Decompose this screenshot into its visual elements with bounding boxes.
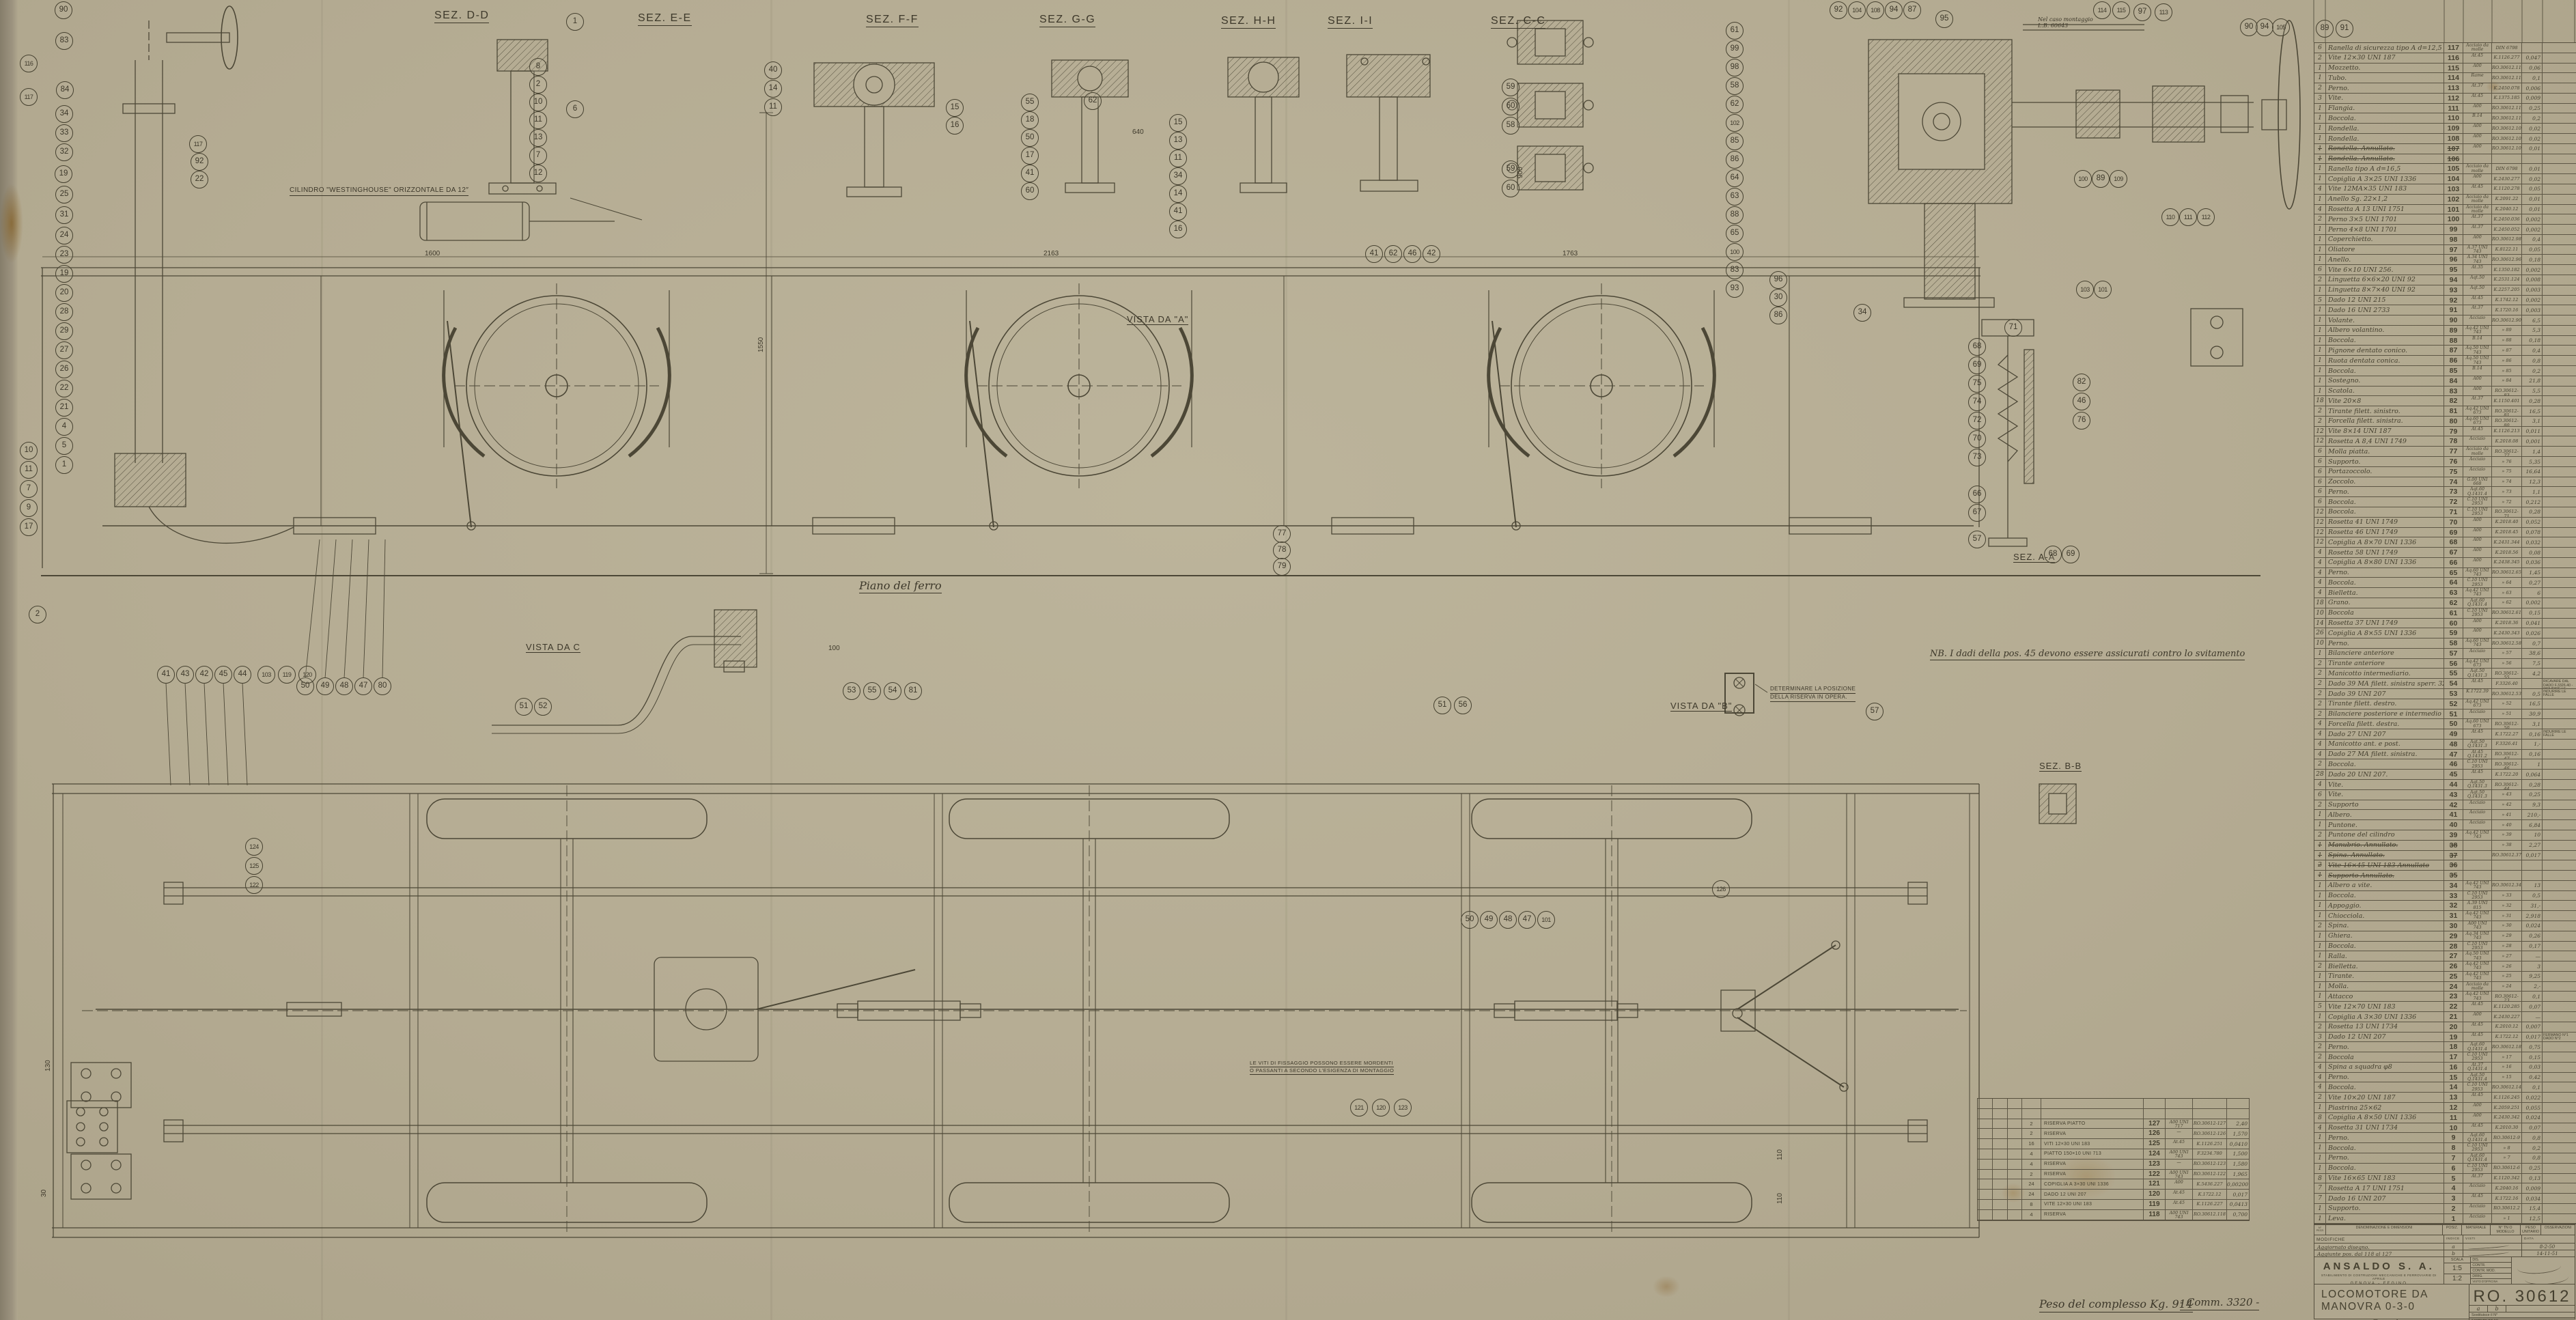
table-cell: RO.30612.65 [2492,568,2522,578]
table-cell: 55 [2444,669,2463,678]
revision-empty [2506,1306,2575,1312]
table-cell [2463,851,2492,860]
table-cell: 115 [2444,64,2463,73]
table-cell [2543,659,2576,669]
aux-table-row: 24COPIGLIA A 3×30 UNI 1336121A00K.5436.2… [1978,1179,2249,1190]
table-cell: 107 [2444,144,2463,154]
table-cell [2543,1012,2576,1022]
table-cell: Rondella. Annullato. [2326,154,2444,164]
table-cell: Vite 6×10 UNI 256. [2326,265,2444,275]
table-cell: 1 [2314,1143,2326,1153]
table-cell: Linguetta 6×6×20 UNI 92 [2326,275,2444,285]
table-cell [2543,851,2576,860]
table-cell: 0,2 [2522,113,2543,123]
modifiche-header-row: MODIFICHE INDICE VISTI DATA [2314,1235,2575,1244]
table-cell [2543,255,2576,264]
part-balloon: 60 [1021,182,1039,200]
table-cell: 5 [2314,1002,2326,1011]
table-cell: Boccola. [2326,759,2444,769]
table-cell: K.2450.052 [2492,225,2522,234]
aux-cell [1978,1129,1993,1138]
part-balloon: 41 [1365,245,1383,263]
table-cell: 4 [2314,184,2326,194]
dimension-text: 2163 [1044,250,1059,257]
part-balloon: 94 [2256,18,2273,36]
table-row: 10Perno.58Aq.60 UNI 743RO.30612.580,7 [2314,638,2576,649]
table-cell: 101 [2444,205,2463,214]
table-row: 2Boccola.46C.10 UNI 2953RO.30612-461 [2314,759,2576,770]
table-cell: Aq.42 UNI 743 [2463,961,2492,971]
table-cell: 0,003 [2522,305,2543,315]
table-cell [2543,64,2576,73]
part-balloon: 47 [1518,911,1536,929]
part-balloon: 10 [529,94,547,111]
table-cell: Forcella filett. destra. [2326,719,2444,729]
table-cell: K.2257.205 [2492,285,2522,295]
table-cell: 113 [2444,83,2463,93]
part-balloon: 126 [1712,880,1730,898]
table-cell: 0,078 [2522,528,2543,537]
table-cell: K.1126.277 [2492,53,2522,63]
table-cell: At.37 [2463,1174,2492,1183]
table-cell: K.2430.343 [2492,628,2522,638]
table-cell: Grano. [2326,598,2444,608]
table-cell: RO.30612.18 [2492,1042,2522,1052]
aux-cell [2008,1170,2022,1179]
table-cell: 82 [2444,396,2463,406]
table-cell [2543,144,2576,154]
table-cell: 34 [2444,881,2463,890]
table-cell: K.1720.16 [2492,305,2522,315]
table-cell: 74 [2444,477,2463,487]
table-cell: Acciaio da molle [2463,43,2492,53]
table-cell: K.2430.277 [2492,174,2522,184]
part-balloon: 50 [1021,129,1039,147]
table-cell: Vite 20×8 [2326,396,2444,406]
table-cell: 50 [2444,719,2463,729]
part-balloon: 1 [55,456,73,474]
aux-cell: VITE 12×30 UNI 183 [2041,1200,2144,1209]
part-balloon: 117 [189,135,207,153]
part-balloon: 73 [1968,449,1986,466]
signature-scribble [2468,1250,2509,1256]
table-row: 4Perno.65Aq.60 UNI 743RO.30612.651,45 [2314,568,2576,578]
table-cell: 0,01 [2522,205,2543,214]
table-cell [2543,1002,2576,1011]
table-cell: A00 [2463,1113,2492,1123]
table-cell: Acciaio [2463,467,2492,477]
table-row: 8Copiglia A 8×50 UNI 133611A00K.2430.342… [2314,1113,2576,1123]
table-cell: 0,07 [2522,1123,2543,1133]
table-cell: 94 [2444,275,2463,285]
table-cell: 99 [2444,225,2463,234]
table-cell: 0,017 [2522,1033,2543,1042]
company-name: ANSALDO S. A. [2314,1261,2444,1272]
table-cell: A00 [2463,1012,2492,1022]
table-cell: 0,5 [2522,689,2543,699]
table-cell: 6 [2314,467,2326,477]
table-cell: » 72 [2492,497,2522,507]
table-cell: Anello Sg. 22×1,2 [2326,195,2444,204]
table-row: 1Leva.1Acciaio» 112,5 [2314,1214,2576,1224]
table-cell: Vite. [2326,94,2444,103]
table-cell: K.2010.30 [2492,1123,2522,1133]
table-cell: Aq.34 UNI 743 [2463,931,2492,941]
aux-cell [2144,1109,2166,1119]
table-cell: 1 [2314,1133,2326,1142]
table-cell: 7 [2444,1153,2463,1163]
part-balloon: 44 [234,666,251,684]
table-cell: B.14 [2463,113,2492,123]
table-cell: 7 [2314,1194,2326,1203]
table-row: 1Linguetta 8×7×40 UNI 9293Aqt.50K.2257.2… [2314,285,2576,296]
table-cell: Aq.42 UNI 743 [2463,972,2492,981]
table-cell: Copiglia A 8×70 UNI 1336 [2326,537,2444,547]
table-cell: 6,5 [2522,315,2543,325]
part-balloon: 84 [56,81,74,99]
table-cell: Rosetta 46 UNI 1749 [2326,528,2444,537]
table-cell [2543,669,2576,678]
table-row: 2Boccola17C.10 UNI 2953» 170,15 [2314,1052,2576,1063]
montaggio-note-line2: L.B. 60643 [2038,23,2093,29]
table-cell: Dado 16 UNI 207 [2326,1194,2444,1203]
table-cell [2543,972,2576,981]
table-cell: 0,2 [2522,1143,2543,1153]
table-cell: At.45 [2463,679,2492,688]
table-cell [2543,356,2576,365]
aux-cell [2008,1099,2022,1108]
table-cell [2543,860,2576,870]
table-cell: 93 [2444,285,2463,295]
table-cell: 0,18 [2522,255,2543,264]
table-cell: » 89 [2492,326,2522,335]
table-cell [2543,901,2576,910]
table-cell [2543,841,2576,850]
aux-cell: DADO 12 UNI 207 [2041,1190,2144,1199]
part-balloon: 11 [20,461,38,479]
part-balloon: 112 [2197,208,2215,226]
table-cell: 6 [2314,447,2326,456]
table-cell: At.45 [2463,427,2492,436]
aux-cell: RISERVA [2041,1160,2144,1169]
table-row: 2Tirante filett. destro.52Aq.42 UNI 673»… [2314,699,2576,710]
company-cell: ANSALDO S. A. STABILIMENTO DI COSTRUZION… [2314,1257,2444,1284]
table-cell [2543,1214,2576,1224]
table-row: 1Molla.24Acciaio da molle» 242,- [2314,982,2576,992]
table-cell: Sostegno. [2326,376,2444,386]
table-cell: Perno. [2326,1042,2444,1052]
table-cell [2543,94,2576,103]
aux-cell [2008,1119,2022,1129]
table-row: 7Dado 16 UNI 2073At.45K.1722.160,034 [2314,1194,2576,1204]
table-cell: K.2018.08 [2492,436,2522,446]
table-cell: Acciaio [2463,710,2492,719]
table-cell [2543,245,2576,255]
section-label: SEZ. F-F [866,14,919,27]
table-cell [2543,1153,2576,1163]
table-cell: 10 [2314,608,2326,618]
table-row: 1Supporto Annullato.35 [2314,871,2576,881]
table-cell: 1 [2314,891,2326,901]
table-cell: K.1120.278 [2492,184,2522,194]
table-cell: Boccola. [2326,1082,2444,1092]
table-cell: At.45 [2463,1033,2492,1042]
dimension-text: 1600 [425,250,440,257]
part-balloon: 31 [55,206,73,224]
table-cell: » 51 [2492,710,2522,719]
table-cell: 3 [2444,1194,2463,1203]
aux-cell: 119 [2144,1200,2166,1209]
aux-cell [1978,1109,1993,1119]
table-cell: 4 [2314,558,2326,567]
table-cell: Acciaio [2463,820,2492,830]
table-cell: 46 [2444,759,2463,769]
table-row: 2Linguetta 6×6×20 UNI 9294Aqt.50K.2531.1… [2314,275,2576,285]
nb-note: NB. I dadi della pos. 45 devono essere a… [1930,649,2245,660]
part-balloon: 102 [1726,114,1744,132]
table-cell: 0,009 [2522,94,2543,103]
part-balloon: 92 [1830,1,1847,19]
table-cell: RO.30612.58 [2492,638,2522,648]
table-cell [2543,1073,2576,1082]
table-cell: K.2531.124 [2492,275,2522,285]
table-cell [2543,73,2576,83]
table-cell: Aq.60 UNI 743 [2463,568,2492,578]
table-cell: 78 [2444,436,2463,446]
part-balloon: 42 [1423,245,1440,263]
table-cell: Vite 8×14 UNI 187 [2326,427,2444,436]
table-cell: 4 [2314,750,2326,759]
table-cell: Spina. [2326,921,2444,931]
table-cell: Boccola. [2326,507,2444,517]
signature-labels: DIS. CONTR. CONTR. MOD. DIRIG. VISTO D'O… [2471,1257,2512,1284]
table-cell: 37 [2444,851,2463,860]
table-cell: 67 [2444,548,2463,557]
table-cell: Chiocciola. [2326,911,2444,921]
table-row: 1Volante.90AcciaioRO.30612.906,5 [2314,315,2576,326]
table-cell: 52 [2444,699,2463,709]
table-row: 3Dado 12 UNI 20719At.45K.1722.120,017Fer… [2314,1033,2576,1043]
table-cell: Coperchietto. [2326,235,2444,244]
table-cell: At.37 [2463,214,2492,224]
table-cell: Boccola [2326,1052,2444,1062]
table-cell: 1,4 [2522,447,2543,456]
part-balloon: 41 [1169,203,1187,221]
table-cell: 110 [2444,113,2463,123]
table-cell: A00 [2463,174,2492,184]
table-cell: 12 [2314,436,2326,446]
montaggio-note-line1: Nel caso montaggio [2038,16,2093,23]
table-cell: K.2438.345 [2492,558,2522,567]
aux-cell [2166,1099,2193,1108]
aux-cell [2193,1099,2227,1108]
table-cell: — [2522,951,2543,961]
table-cell: » 27 [2492,951,2522,961]
table-cell: 44 [2444,780,2463,789]
table-cell [2543,1103,2576,1112]
table-cell: » 42 [2492,800,2522,810]
table-cell: 10 [2314,638,2326,648]
table-cell: 105 [2444,164,2463,173]
header-osservazioni: OSSERVAZIONI [2541,1225,2575,1235]
table-cell: 0,036 [2522,558,2543,567]
table-cell: 2 [2314,214,2326,224]
aux-cell [2041,1099,2144,1108]
table-cell: » 62 [2492,598,2522,608]
aux-cell: 0,0413 [2227,1200,2249,1209]
table-cell: Acciaio [2463,800,2492,810]
table-cell: Supporto. [2326,1204,2444,1213]
part-balloon: 60 [1502,98,1520,115]
table-cell: RO.30612-46 [2492,759,2522,769]
table-cell: 33 [2444,891,2463,901]
table-cell: » 63 [2492,588,2522,598]
table-cell: 31,- [2522,901,2543,910]
sig-contr-mod: CONTR. MOD. [2471,1268,2511,1274]
table-cell: K.2018.40 [2492,518,2522,527]
table-cell: At.45 [2463,1194,2492,1203]
aux-cell: 4 [2022,1149,2041,1159]
aux-cell [1978,1149,1993,1159]
table-cell [2543,891,2576,901]
aux-cell: — [2166,1129,2193,1138]
table-row: 1Dado 16 UNI 273391At.37K.1720.160,003 [2314,305,2576,315]
table-cell: 90 [2444,315,2463,325]
table-cell [2543,436,2576,446]
parts-table: 6Ranella di sicurezza tipo A d=12,5117Ac… [2314,42,2576,1224]
table-cell: 58 [2444,638,2463,648]
table-cell: 21,8 [2522,376,2543,386]
table-row: 1Mozzetto.115A00RO.30612.1150,06 [2314,64,2576,74]
header-modello: N° TN O MODELLO [2491,1225,2521,1235]
table-cell: 0,25 [2522,104,2543,113]
part-balloon: 8 [529,58,547,76]
table-cell: At.37 [2463,83,2492,93]
table-cell: Aqt.60 Q.1431.4 [2463,487,2492,496]
table-cell: Ghiera. [2326,931,2444,941]
aux-cell: 24 [2022,1179,2041,1189]
table-row: 1Tirante.25Aq.42 UNI 743» 259,25 [2314,972,2576,982]
table-cell: C.10 UNI 2953 [2463,1052,2492,1062]
table-cell: » 17 [2492,1052,2522,1062]
table-cell [2543,1143,2576,1153]
table-row: 1Boccola.110B.14RO.30612.1100,2 [2314,113,2576,124]
table-cell: Boccola. [2326,113,2444,123]
table-cell: 108 [2444,134,2463,143]
table-cell [2543,507,2576,517]
part-balloon: 19 [55,265,73,283]
part-balloon: 9 [20,499,38,517]
table-cell [2492,860,2522,870]
table-cell: Perno. [2326,1073,2444,1082]
table-cell [2463,841,2492,850]
table-cell: Acciaio [2463,1214,2492,1224]
table-cell: 1,45 [2522,568,2543,578]
table-cell: A00 [2463,144,2492,154]
table-cell [2543,830,2576,840]
table-cell [2543,1063,2576,1072]
table-cell: 0,28 [2522,780,2543,789]
part-balloon: 120 [1372,1099,1390,1117]
table-cell: 77 [2444,447,2463,456]
drawing-number-cell: RO. 30612 a b Sostituisce il N° Sostitui… [2469,1284,2575,1320]
table-cell: At.45 [2463,1123,2492,1133]
part-balloon: 83 [55,32,73,50]
part-balloon: 58 [1726,77,1744,95]
table-cell: B.14 [2463,336,2492,346]
table-cell: Aq.42 UNI 743 [2463,992,2492,1001]
table-cell: 2 [2314,710,2326,719]
table-cell [2543,427,2576,436]
table-cell: » 26 [2492,961,2522,971]
table-cell: K.1120.285 [2492,1002,2522,1011]
table-row: 1Tubo.114RameRO.30612.1140,1 [2314,73,2576,83]
section-label: SEZ. I-I [1328,15,1373,29]
table-cell: 85 [2444,366,2463,376]
modifica-row-b: Aggiunte pos. dal 118 al 127 b 14-11-51 [2314,1250,2575,1257]
table-cell: 0,006 [2522,83,2543,93]
aux-cell [2008,1190,2022,1199]
visto-officina: VISTO D'OFFICINA [2471,1279,2511,1284]
table-cell: 116 [2444,53,2463,63]
table-cell: A00 UNI 743 [2463,921,2492,931]
table-cell: 1 [2314,1012,2326,1022]
table-cell: » 64 [2492,578,2522,587]
table-cell [2543,346,2576,355]
table-cell: 1 [2314,1103,2326,1112]
table-cell: A00 [2463,134,2492,143]
table-cell: 3 [2522,961,2543,971]
part-balloon: 104 [1848,1,1866,19]
table-cell: 61 [2444,608,2463,618]
part-balloon: 74 [1968,393,1986,411]
table-cell: » 39 [2492,830,2522,840]
part-balloon: 13 [529,129,547,147]
aux-parts-table: 2RISERVA PIATTO127A00 UNI 717RO.30612-12… [1977,1098,2250,1221]
aux-cell [1993,1210,2008,1220]
aux-table-row: 4PIATTO 150×10 UNI 713124A00 UNI 743F.32… [1978,1149,2249,1160]
table-cell: Aq.60 UNI 743 [2463,638,2492,648]
table-cell: Aq.50 UNI 743 [2463,346,2492,355]
table-cell: » 32 [2492,901,2522,910]
aux-cell [2166,1109,2193,1119]
table-cell: Aq.42 UNI 673 [2463,659,2492,669]
table-cell: RO.30612-50 [2492,719,2522,729]
table-cell [2543,1022,2576,1032]
part-balloon: 80 [374,677,391,695]
table-cell: 68 [2444,537,2463,547]
table-cell: Aq.60 UNI 673 [2463,719,2492,729]
table-row: 6Ranella di sicurezza tipo A d=12,5117Ac… [2314,43,2576,53]
table-cell: Albero a vite. [2326,881,2444,890]
table-cell: Dado 27 UNI 207 [2326,729,2444,739]
table-cell: 28 [2314,770,2326,779]
table-row: 1Attacco23Aq.42 UNI 743RO.30612-230,1 [2314,992,2576,1002]
table-row: 28Dado 20 UNI 207.45At.45K.1722.200,064 [2314,770,2576,780]
table-cell: Bilanciere anteriore [2326,649,2444,658]
view-label: VISTA DA C [526,642,580,653]
table-cell: Puntone del cilindro [2326,830,2444,840]
aux-cell: At.45 [2166,1190,2193,1199]
table-cell: 20 [2444,1022,2463,1032]
table-row: 1Piastrina 25×6212A00K.2059.2510,055 [2314,1103,2576,1113]
table-cell: 1 [2314,113,2326,123]
aux-cell: 1,965 [2227,1170,2249,1179]
aux-cell: 16 [2022,1139,2041,1149]
table-cell: Dado 39 UNI 207 [2326,689,2444,699]
aux-cell [2008,1109,2022,1119]
table-cell [2543,174,2576,184]
